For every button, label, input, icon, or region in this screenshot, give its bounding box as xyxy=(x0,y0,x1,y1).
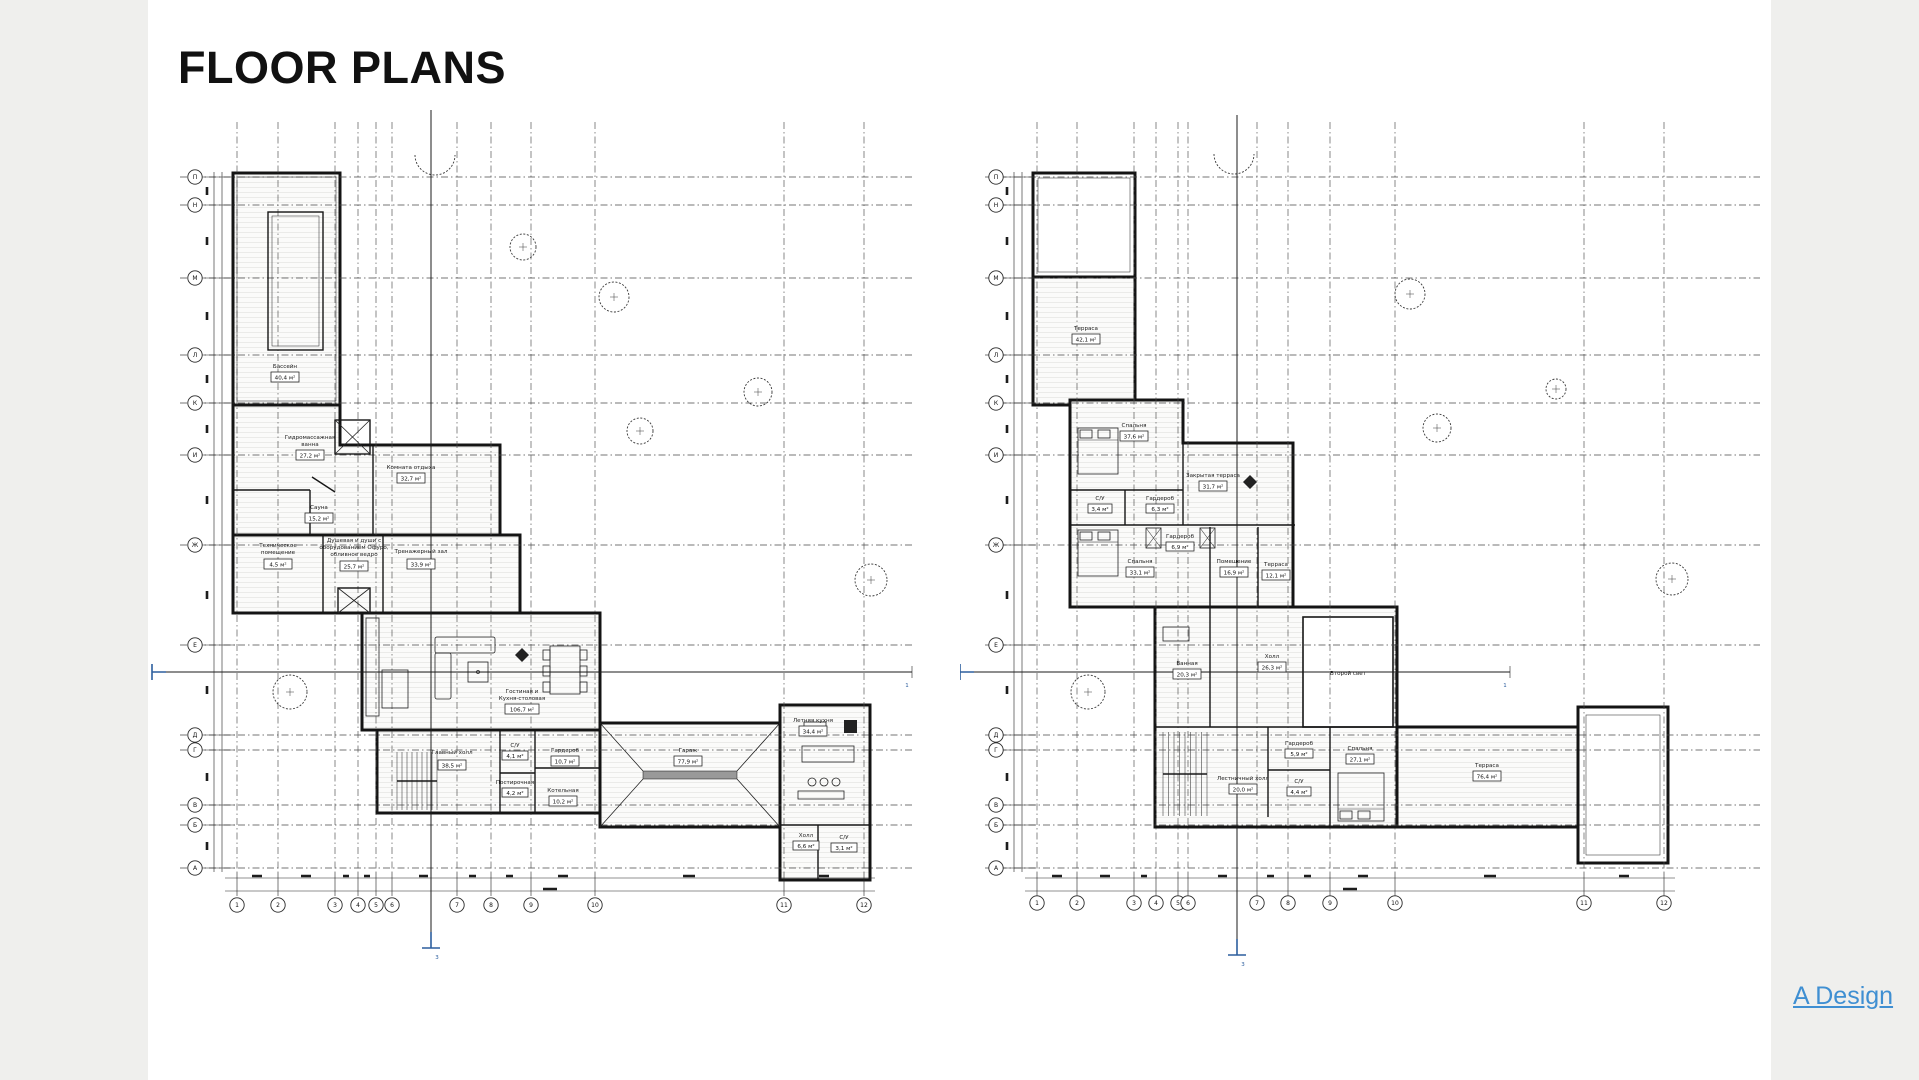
svg-text:Спальня: Спальня xyxy=(1128,559,1153,565)
svg-text:Б: Б xyxy=(193,822,197,829)
svg-text:6: 6 xyxy=(390,902,394,909)
svg-text:Лестничный холл: Лестничный холл xyxy=(1217,775,1269,782)
svg-text:П: П xyxy=(193,174,198,181)
svg-text:К: К xyxy=(193,400,198,407)
svg-text:12,1 м²: 12,1 м² xyxy=(1266,573,1287,580)
svg-text:12: 12 xyxy=(1660,900,1668,907)
svg-text:Н: Н xyxy=(994,202,999,209)
svg-text:Второй свет: Второй свет xyxy=(1330,670,1367,677)
section-label-bottom: 3 xyxy=(435,955,439,961)
svg-text:10: 10 xyxy=(591,902,599,909)
svg-text:В: В xyxy=(193,802,197,809)
svg-text:Комната отдыха: Комната отдыха xyxy=(387,465,436,471)
svg-text:11: 11 xyxy=(1580,900,1588,907)
svg-text:40,4 м²: 40,4 м² xyxy=(275,375,296,382)
room-boiler: Котельная10,2 м² xyxy=(547,788,578,806)
svg-text:Сауна: Сауна xyxy=(310,505,328,511)
svg-text:6,3 м²: 6,3 м² xyxy=(1151,506,1168,513)
section-label-side: 1 xyxy=(905,683,909,689)
svg-text:П: П xyxy=(994,174,999,181)
svg-text:Гараж: Гараж xyxy=(679,748,698,754)
svg-text:Закрытая терраса: Закрытая терраса xyxy=(1186,473,1240,479)
svg-text:оборудованием Офуро,: оборудованием Офуро, xyxy=(319,545,388,551)
room-summer-kitchen: Летняя кухня34,4 м² xyxy=(793,718,833,736)
svg-text:5: 5 xyxy=(1176,900,1180,907)
row-bubbles: ПНМЛКИЖЕДГВБА xyxy=(989,170,1003,875)
svg-text:25,7 м²: 25,7 м² xyxy=(344,564,365,571)
svg-text:С/У: С/У xyxy=(1095,496,1105,502)
credit-link[interactable]: A Design xyxy=(1793,980,1903,1013)
svg-text:2: 2 xyxy=(1075,900,1079,907)
svg-text:4,5 м²: 4,5 м² xyxy=(269,562,286,569)
room-pool: Бассейн40,4 м² xyxy=(271,363,299,382)
svg-text:15,2 м²: 15,2 м² xyxy=(309,516,330,523)
svg-text:3: 3 xyxy=(1132,900,1136,907)
svg-text:6,6 м²: 6,6 м² xyxy=(797,843,814,850)
room-void: Второй свет xyxy=(1330,670,1367,677)
svg-text:обливное ведро: обливное ведро xyxy=(330,552,378,558)
svg-text:В: В xyxy=(994,802,998,809)
svg-text:5,9 м²: 5,9 м² xyxy=(1290,751,1307,758)
svg-text:Гардероб: Гардероб xyxy=(1285,741,1314,747)
svg-text:4: 4 xyxy=(1154,900,1158,907)
svg-text:С/У: С/У xyxy=(510,743,520,749)
svg-text:3,1 м²: 3,1 м² xyxy=(835,845,852,852)
svg-text:Душевая и души с: Душевая и души с xyxy=(327,538,381,544)
svg-text:Е: Е xyxy=(193,642,197,649)
svg-text:Терраса: Терраса xyxy=(1073,326,1098,332)
building-outline xyxy=(233,173,870,880)
second-floor-plan: 3 1 ПНМЛКИЖЕДГВБА 123456789101112 Террас… xyxy=(960,110,1770,990)
room-bedroom1: Спальня37,6 м² xyxy=(1120,423,1148,441)
svg-text:Г: Г xyxy=(193,747,197,754)
svg-text:8: 8 xyxy=(1286,900,1290,907)
svg-text:помещение: помещение xyxy=(261,550,296,556)
svg-text:Помещение: Помещение xyxy=(1217,559,1252,565)
svg-text:6,9 м²: 6,9 м² xyxy=(1171,544,1188,551)
room-wardrobe3: Гардероб5,9 м² xyxy=(1285,741,1314,758)
svg-text:С/У: С/У xyxy=(839,835,849,841)
svg-text:Л: Л xyxy=(994,352,999,359)
svg-text:26,3 м²: 26,3 м² xyxy=(1262,665,1283,672)
room-living: Гостиная иКухня-столовая106,7 м² xyxy=(499,689,545,714)
col-bubbles: 123456789101112 xyxy=(230,898,871,912)
svg-text:Холл: Холл xyxy=(1265,654,1280,660)
svg-text:Техническое: Техническое xyxy=(258,543,297,549)
svg-text:Гидромассажная: Гидромассажная xyxy=(285,435,336,441)
svg-text:8: 8 xyxy=(489,902,493,909)
svg-text:20,3 м²: 20,3 м² xyxy=(1177,672,1198,679)
svg-text:Постирочная: Постирочная xyxy=(496,780,534,786)
svg-text:9: 9 xyxy=(529,902,533,909)
svg-text:К: К xyxy=(994,400,999,407)
room-wardrobe: Гардероб10,7 м² xyxy=(551,748,580,766)
svg-text:34,4 м²: 34,4 м² xyxy=(803,729,824,736)
svg-text:2: 2 xyxy=(276,902,280,909)
svg-text:31,7 м²: 31,7 м² xyxy=(1203,484,1224,491)
room-bedroom2: Спальня33,1 м² xyxy=(1126,559,1154,577)
svg-text:Бассейн: Бассейн xyxy=(273,363,297,370)
svg-text:4,2 м²: 4,2 м² xyxy=(506,790,523,797)
room-terrace-long: Терраса76,4 м² xyxy=(1473,763,1501,781)
svg-text:33,1 м²: 33,1 м² xyxy=(1130,570,1151,577)
svg-text:Главный холл: Главный холл xyxy=(431,749,473,756)
svg-text:Е: Е xyxy=(994,642,998,649)
svg-text:Л: Л xyxy=(193,352,198,359)
room-wardrobe2: Гардероб6,9 м² xyxy=(1166,534,1195,551)
room-terrace-upper: Терраса42,1 м² xyxy=(1072,326,1100,344)
page-title: FLOOR PLANS xyxy=(178,42,506,94)
svg-text:38,5 м²: 38,5 м² xyxy=(442,763,463,770)
svg-text:106,7 м²: 106,7 м² xyxy=(510,707,534,714)
first-floor-plan: 3 1 ПНМЛКИЖЕДГВБА 123456789101112 Бассей… xyxy=(150,110,930,990)
svg-text:С/У: С/У xyxy=(1294,779,1304,785)
svg-text:И: И xyxy=(994,452,999,459)
section-label-side: 1 xyxy=(1503,683,1507,689)
svg-text:Ванная: Ванная xyxy=(1176,661,1197,667)
svg-text:Б: Б xyxy=(994,822,998,829)
svg-text:Ж: Ж xyxy=(192,542,199,549)
svg-text:7: 7 xyxy=(455,902,459,909)
slide: FLOOR PLANS xyxy=(0,0,1919,1080)
svg-text:10: 10 xyxy=(1391,900,1399,907)
svg-text:Тренажерный зал: Тренажерный зал xyxy=(394,548,448,555)
svg-text:М: М xyxy=(993,275,998,282)
svg-text:20,0 м²: 20,0 м² xyxy=(1233,787,1254,794)
svg-text:Кухня-столовая: Кухня-столовая xyxy=(499,696,545,702)
room-bathroom: Ванная20,3 м² xyxy=(1173,661,1201,679)
svg-text:7: 7 xyxy=(1255,900,1259,907)
svg-text:Д: Д xyxy=(193,732,198,739)
svg-text:Летняя кухня: Летняя кухня xyxy=(793,718,833,724)
svg-text:Гардероб: Гардероб xyxy=(551,748,580,754)
svg-text:4,4 м²: 4,4 м² xyxy=(1290,789,1307,796)
svg-text:27,2 м²: 27,2 м² xyxy=(300,453,321,460)
svg-text:76,4 м²: 76,4 м² xyxy=(1477,774,1498,781)
svg-text:1: 1 xyxy=(1035,900,1039,907)
svg-text:Гардероб: Гардероб xyxy=(1166,534,1195,540)
svg-text:Холл: Холл xyxy=(799,833,814,839)
svg-text:12: 12 xyxy=(860,902,868,909)
svg-text:ванна: ванна xyxy=(301,442,318,448)
svg-text:Терраса: Терраса xyxy=(1263,562,1288,568)
svg-text:33,9 м²: 33,9 м² xyxy=(411,562,432,569)
svg-text:11: 11 xyxy=(780,902,788,909)
svg-text:Котельная: Котельная xyxy=(547,788,578,794)
row-bubbles: ПНМЛКИЖЕДГВБА xyxy=(188,170,202,875)
svg-text:4,1 м²: 4,1 м² xyxy=(506,753,523,760)
svg-text:И: И xyxy=(193,452,198,459)
svg-text:37,6 м²: 37,6 м² xyxy=(1124,434,1145,441)
svg-text:42,1 м²: 42,1 м² xyxy=(1076,337,1097,344)
svg-text:Н: Н xyxy=(193,202,198,209)
svg-text:27,1 м²: 27,1 м² xyxy=(1350,757,1371,764)
svg-text:9: 9 xyxy=(1328,900,1332,907)
svg-text:10,2 м²: 10,2 м² xyxy=(553,799,574,806)
svg-text:Г: Г xyxy=(994,747,998,754)
svg-text:10,7 м²: 10,7 м² xyxy=(555,759,576,766)
svg-text:16,9 м²: 16,9 м² xyxy=(1224,570,1245,577)
room-utility: Помещение16,9 м² xyxy=(1217,559,1252,577)
svg-text:Гостиная и: Гостиная и xyxy=(506,689,539,695)
svg-text:77,9 м²: 77,9 м² xyxy=(678,759,699,766)
col-bubbles: 123456789101112 xyxy=(1030,896,1671,910)
svg-text:Ж: Ж xyxy=(993,542,1000,549)
svg-text:Гардероб: Гардероб xyxy=(1146,496,1175,502)
svg-text:Спальня: Спальня xyxy=(1122,423,1147,429)
svg-text:Д: Д xyxy=(994,732,999,739)
svg-text:3,4 м²: 3,4 м² xyxy=(1091,506,1108,513)
svg-text:5: 5 xyxy=(374,902,378,909)
room-bedroom3: Спальня27,1 м² xyxy=(1346,746,1374,764)
svg-text:М: М xyxy=(192,275,197,282)
svg-text:Спальня: Спальня xyxy=(1348,746,1373,752)
svg-text:Терраса: Терраса xyxy=(1474,763,1499,769)
svg-text:32,7 м²: 32,7 м² xyxy=(401,476,422,483)
room-terrace-small: Терраса12,1 м² xyxy=(1262,562,1290,580)
svg-text:1: 1 xyxy=(235,902,239,909)
svg-text:6: 6 xyxy=(1186,900,1190,907)
svg-text:3: 3 xyxy=(333,902,337,909)
room-wardrobe1: Гардероб6,3 м² xyxy=(1146,496,1175,513)
svg-text:4: 4 xyxy=(356,902,360,909)
section-label-bottom: 3 xyxy=(1241,962,1245,968)
